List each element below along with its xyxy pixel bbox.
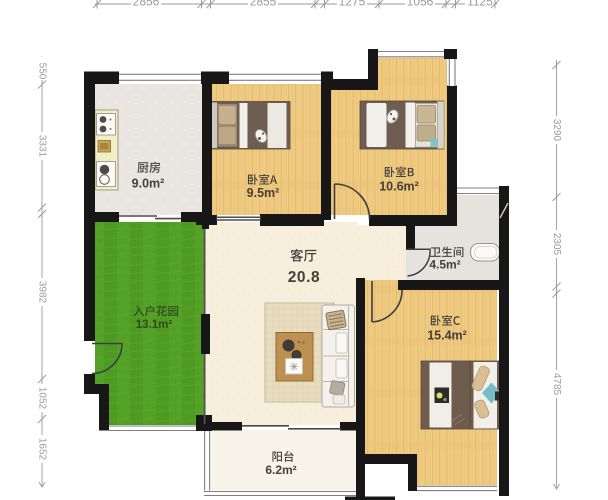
svg-text:9.0m²: 9.0m² bbox=[132, 176, 165, 190]
svg-text:1652: 1652 bbox=[37, 438, 48, 461]
svg-text:3331: 3331 bbox=[37, 135, 48, 158]
svg-text:1125: 1125 bbox=[467, 0, 493, 9]
svg-text:9.5m²: 9.5m² bbox=[247, 186, 280, 200]
svg-text:2855: 2855 bbox=[250, 0, 277, 9]
svg-text:2856: 2856 bbox=[133, 0, 160, 9]
svg-text:3290: 3290 bbox=[551, 119, 562, 142]
svg-text:10.6m²: 10.6m² bbox=[379, 179, 419, 193]
svg-text:6.2m²: 6.2m² bbox=[265, 463, 296, 477]
svg-text:20.8: 20.8 bbox=[288, 269, 321, 286]
svg-text:15.4m²: 15.4m² bbox=[427, 328, 467, 342]
svg-text:13.1m²: 13.1m² bbox=[136, 319, 173, 331]
svg-text:3982: 3982 bbox=[37, 281, 48, 304]
svg-text:4.5m²: 4.5m² bbox=[429, 258, 460, 272]
svg-text:550: 550 bbox=[37, 63, 48, 80]
svg-text:1056: 1056 bbox=[407, 0, 434, 9]
svg-text:4785: 4785 bbox=[551, 373, 562, 396]
svg-text:1052: 1052 bbox=[37, 387, 48, 410]
svg-text:1275: 1275 bbox=[339, 0, 366, 9]
svg-text:2305: 2305 bbox=[551, 233, 562, 256]
